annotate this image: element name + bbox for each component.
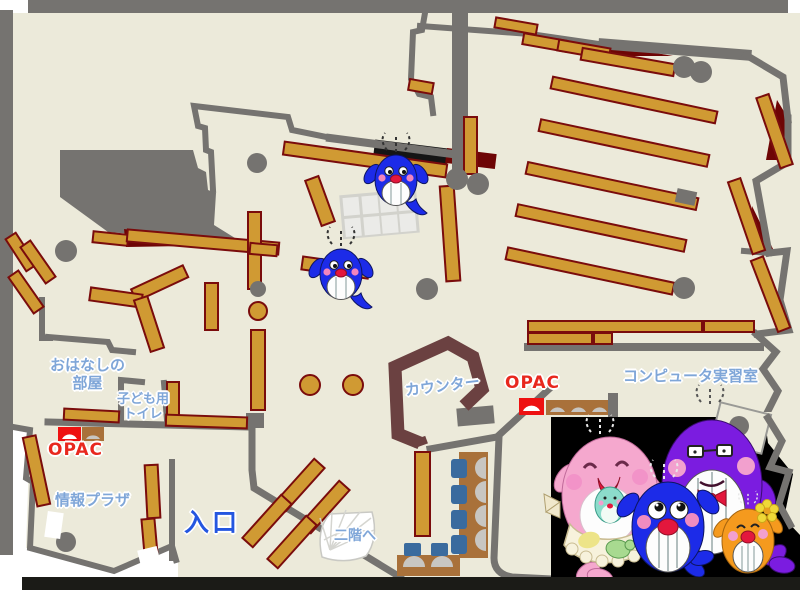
label-entrance: 入口 (184, 508, 240, 538)
label-storytelling-room: おはなしの 部屋 (40, 357, 135, 392)
label-storytelling-room-line2: 部屋 (40, 375, 135, 393)
opac-terminal-right (519, 398, 608, 415)
opac-terminal-left (58, 427, 104, 441)
label-computer-room: コンピュータ実習室 (623, 368, 758, 386)
map-bottom-edge (22, 577, 800, 590)
label-kids-toilet-line2: トイレ (112, 407, 174, 422)
label-info-plaza: 情報プラザ (55, 492, 130, 510)
label-kids-toilet-line1: 子ども用 (112, 392, 174, 407)
label-opac-right: OPAC (505, 373, 560, 393)
label-opac-left: OPAC (48, 440, 103, 460)
label-storytelling-room-line1: おはなしの (40, 357, 135, 375)
label-stairs: 二階へ (334, 528, 376, 545)
label-kids-toilet: 子ども用 トイレ (112, 392, 174, 423)
library-floor-map: おはなしの 部屋 子ども用 トイレ OPAC 情報プラザ 入口 カウンター OP… (0, 0, 800, 590)
